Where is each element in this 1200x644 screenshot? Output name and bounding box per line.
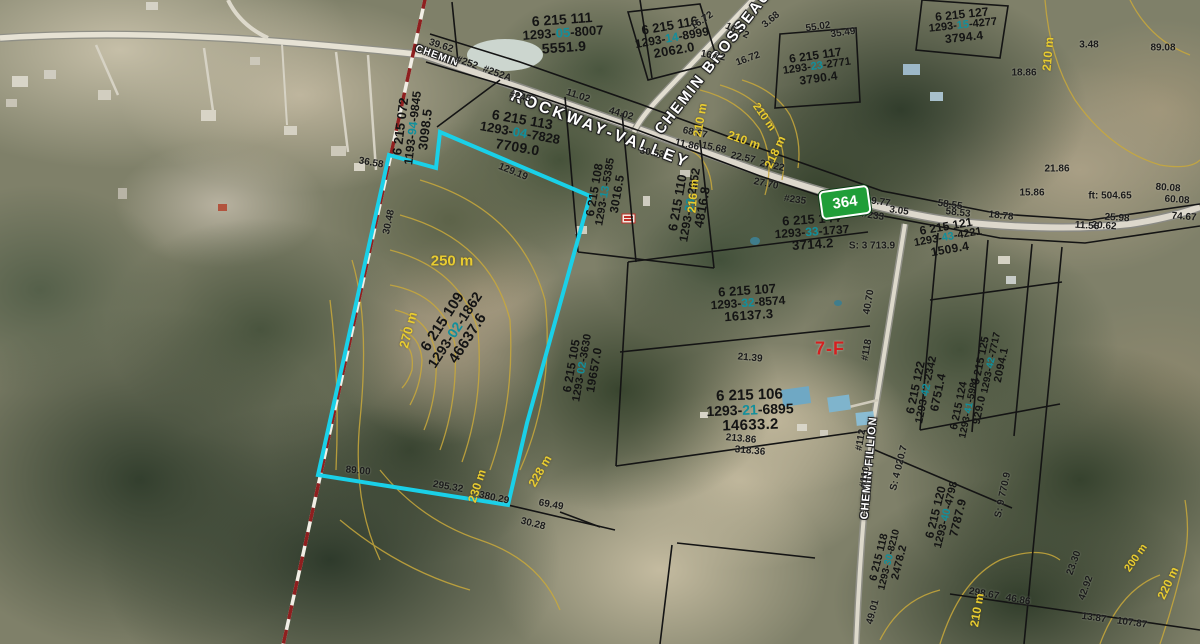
measurement: S: 3 713.9 xyxy=(849,241,895,252)
map-overlay-svg xyxy=(0,0,1200,644)
for-sale-sign xyxy=(622,214,635,223)
measurement: 21.86 xyxy=(1044,164,1069,175)
road-top-left xyxy=(0,0,425,170)
parcel-label-6-215-127[interactable]: 6 215 1271293-15-42773794.4 xyxy=(927,5,999,48)
measurement: 74.67 xyxy=(1171,211,1197,224)
contour-elevation-label: 216 m xyxy=(685,178,702,213)
measurement: 3.48 xyxy=(1079,40,1098,51)
measurement: 11.56 xyxy=(1074,220,1099,233)
measurement: 18.86 xyxy=(1011,68,1036,79)
contour-elevation-label: 210 m xyxy=(1040,36,1057,71)
measurement: 15.86 xyxy=(1019,188,1044,199)
zoning-label: 7-F xyxy=(815,339,845,360)
parcel-label-6-215-106[interactable]: 6 215 1061293-21-689514633.2 xyxy=(706,386,795,434)
measurement: 60.08 xyxy=(1164,194,1190,207)
parcel-label-6-215-111[interactable]: 6 215 1111293-05-80075551.9 xyxy=(521,9,605,56)
contour-elevation-label: 250 m xyxy=(431,253,474,270)
gis-map-viewport[interactable]: 6 215 1091293-02-186246637.66 215 072119… xyxy=(0,0,1200,644)
measurement: 89.08 xyxy=(1150,43,1175,54)
highway-shield-number: 364 xyxy=(831,192,858,212)
measurement: ft: 504.65 xyxy=(1088,191,1131,202)
measurement: 89.00 xyxy=(345,464,371,477)
parcel-label-6-215-107[interactable]: 6 215 1071293-32-857416137.3 xyxy=(709,281,786,325)
measurement: 21.39 xyxy=(737,351,763,364)
measurement: 80.08 xyxy=(1155,182,1181,195)
